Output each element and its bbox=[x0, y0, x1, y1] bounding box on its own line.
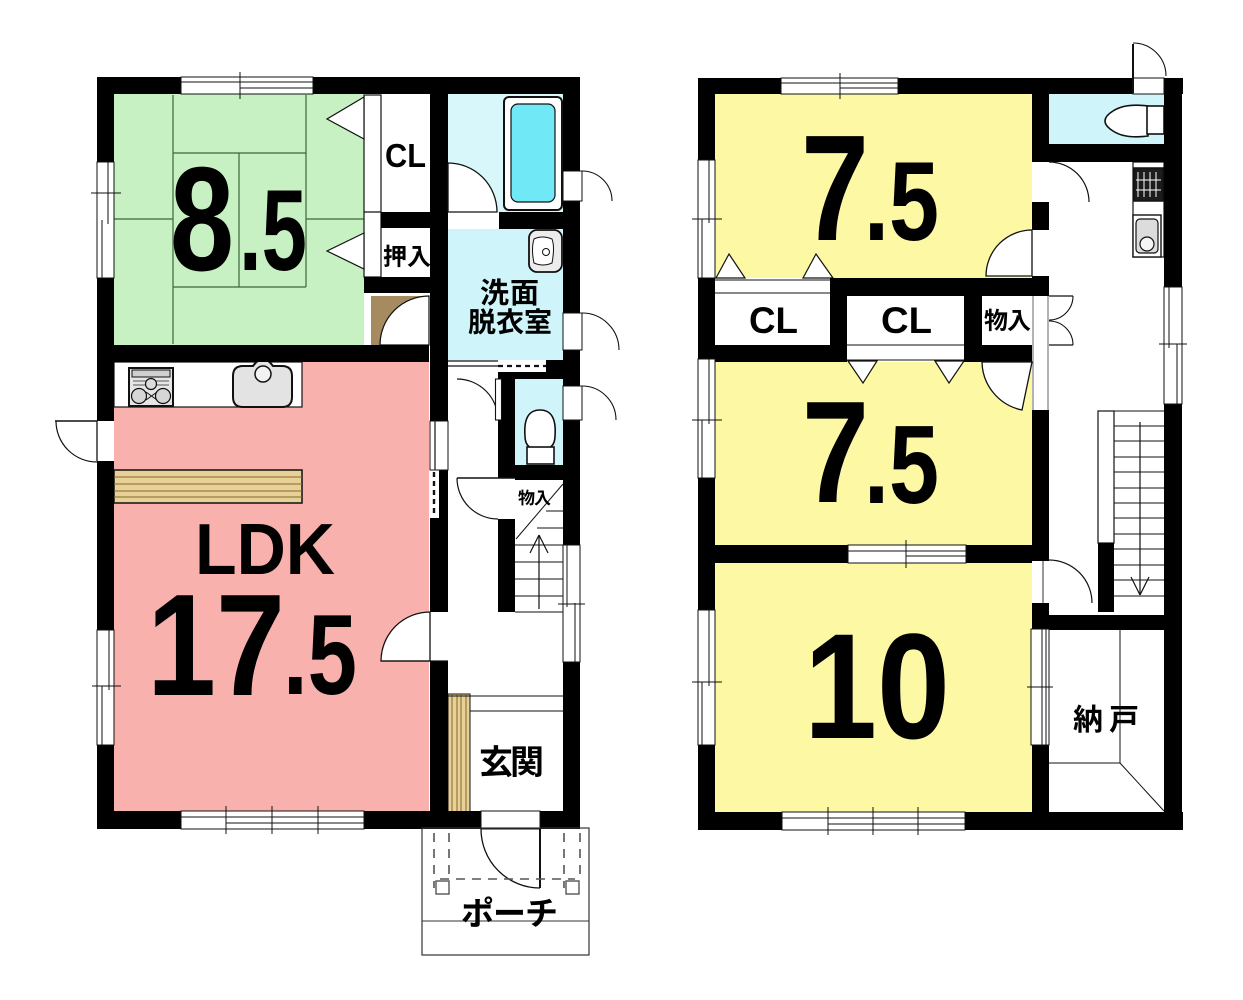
svg-text:.5: .5 bbox=[864, 139, 939, 264]
svg-text:10: 10 bbox=[804, 602, 950, 770]
svg-text:CL: CL bbox=[749, 300, 798, 341]
svg-text:.5: .5 bbox=[283, 592, 357, 719]
svg-text:7: 7 bbox=[802, 371, 869, 533]
svg-text:17: 17 bbox=[147, 564, 285, 726]
svg-text:7: 7 bbox=[801, 103, 869, 272]
svg-text:8: 8 bbox=[170, 137, 234, 302]
svg-text:CL: CL bbox=[385, 137, 426, 174]
svg-text:.5: .5 bbox=[239, 167, 307, 295]
svg-text:.5: .5 bbox=[864, 403, 939, 527]
svg-text:CL: CL bbox=[881, 300, 932, 341]
